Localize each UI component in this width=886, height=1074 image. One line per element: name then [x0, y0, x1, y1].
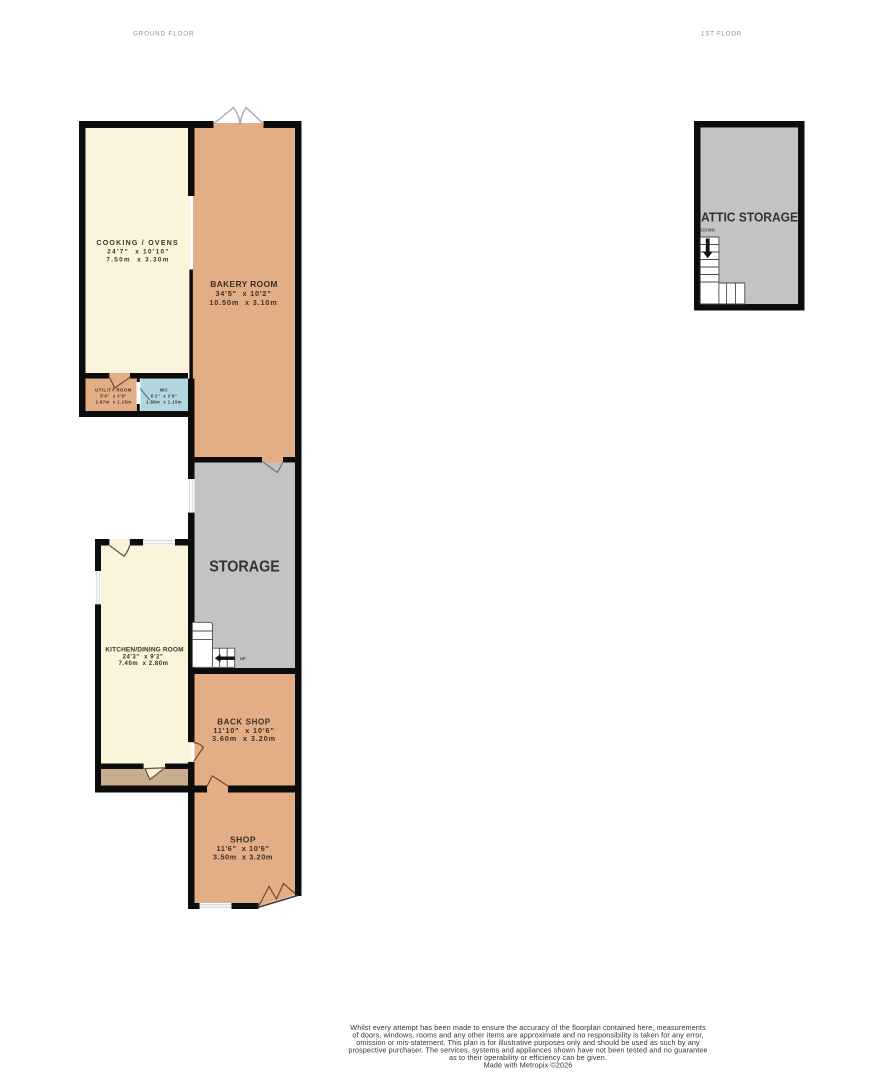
- svg-text:7.50m x 3.30m: 7.50m x 3.30m: [106, 256, 169, 263]
- svg-text:3.50m x 3.20m: 3.50m x 3.20m: [213, 852, 273, 861]
- svg-text:DOWN: DOWN: [701, 228, 715, 233]
- svg-text:34'5" x 10'2": 34'5" x 10'2": [215, 289, 271, 298]
- svg-text:BAKERY ROOM: BAKERY ROOM: [210, 279, 278, 289]
- svg-text:COOKING / OVENS: COOKING / OVENS: [96, 240, 179, 247]
- svg-text:Made with Metropix ©2026: Made with Metropix ©2026: [484, 1061, 573, 1070]
- svg-text:SHOP: SHOP: [230, 835, 256, 845]
- svg-text:24'3" x 9'2": 24'3" x 9'2": [123, 655, 164, 661]
- svg-text:STORAGE: STORAGE: [209, 558, 280, 575]
- svg-text:KITCHEN/DINING ROOM: KITCHEN/DINING ROOM: [105, 646, 183, 653]
- svg-text:3.60m x 3.20m: 3.60m x 3.20m: [212, 734, 276, 743]
- svg-text:UTILITY ROOM: UTILITY ROOM: [95, 387, 132, 392]
- svg-text:24'7" x 10'10": 24'7" x 10'10": [107, 248, 169, 255]
- svg-text:1.67m x 1.15m: 1.67m x 1.15m: [96, 399, 132, 404]
- svg-text:7.40m x 2.80m: 7.40m x 2.80m: [118, 661, 168, 667]
- svg-text:1.88m x 1.15m: 1.88m x 1.15m: [146, 399, 182, 404]
- svg-text:UP: UP: [240, 656, 246, 661]
- svg-text:10.50m x 3.10m: 10.50m x 3.10m: [209, 298, 277, 307]
- svg-text:ATTIC STORAGE: ATTIC STORAGE: [701, 210, 798, 225]
- svg-text:GROUND FLOOR: GROUND FLOOR: [133, 31, 194, 38]
- svg-text:1ST FLOOR: 1ST FLOOR: [701, 31, 742, 38]
- svg-text:6'2" x 3'9": 6'2" x 3'9": [151, 393, 178, 398]
- svg-text:WC: WC: [160, 387, 169, 392]
- svg-text:5'6" x 3'9": 5'6" x 3'9": [100, 393, 127, 398]
